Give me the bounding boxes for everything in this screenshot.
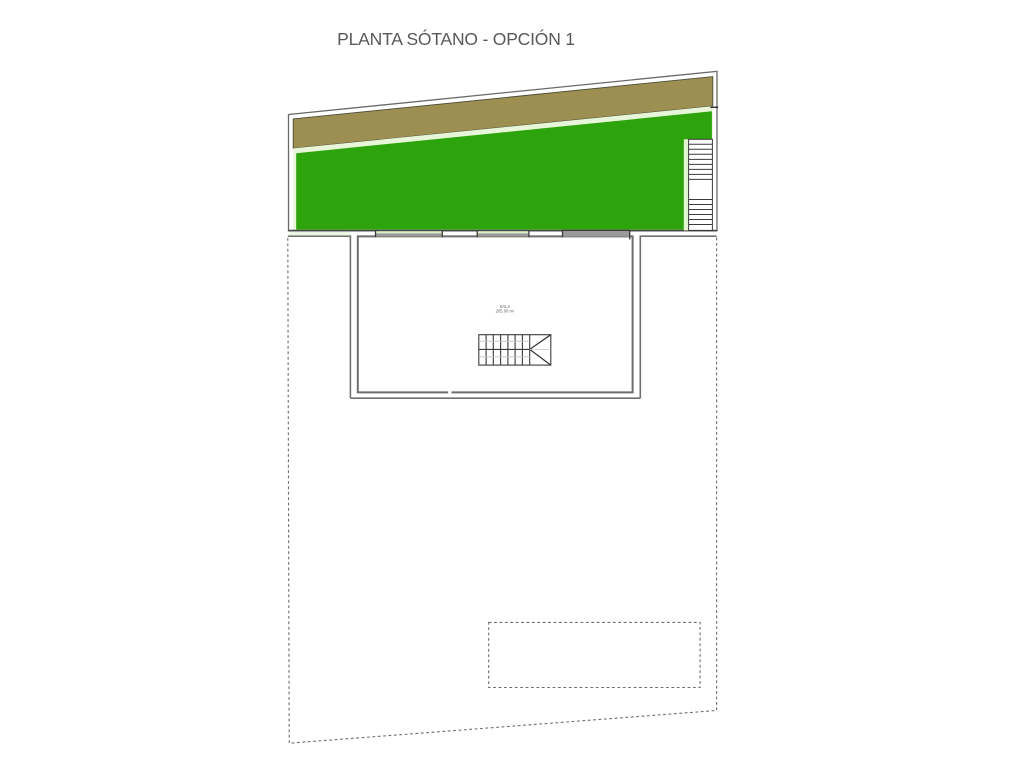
svg-text:205.00 m²: 205.00 m² <box>496 309 515 314</box>
